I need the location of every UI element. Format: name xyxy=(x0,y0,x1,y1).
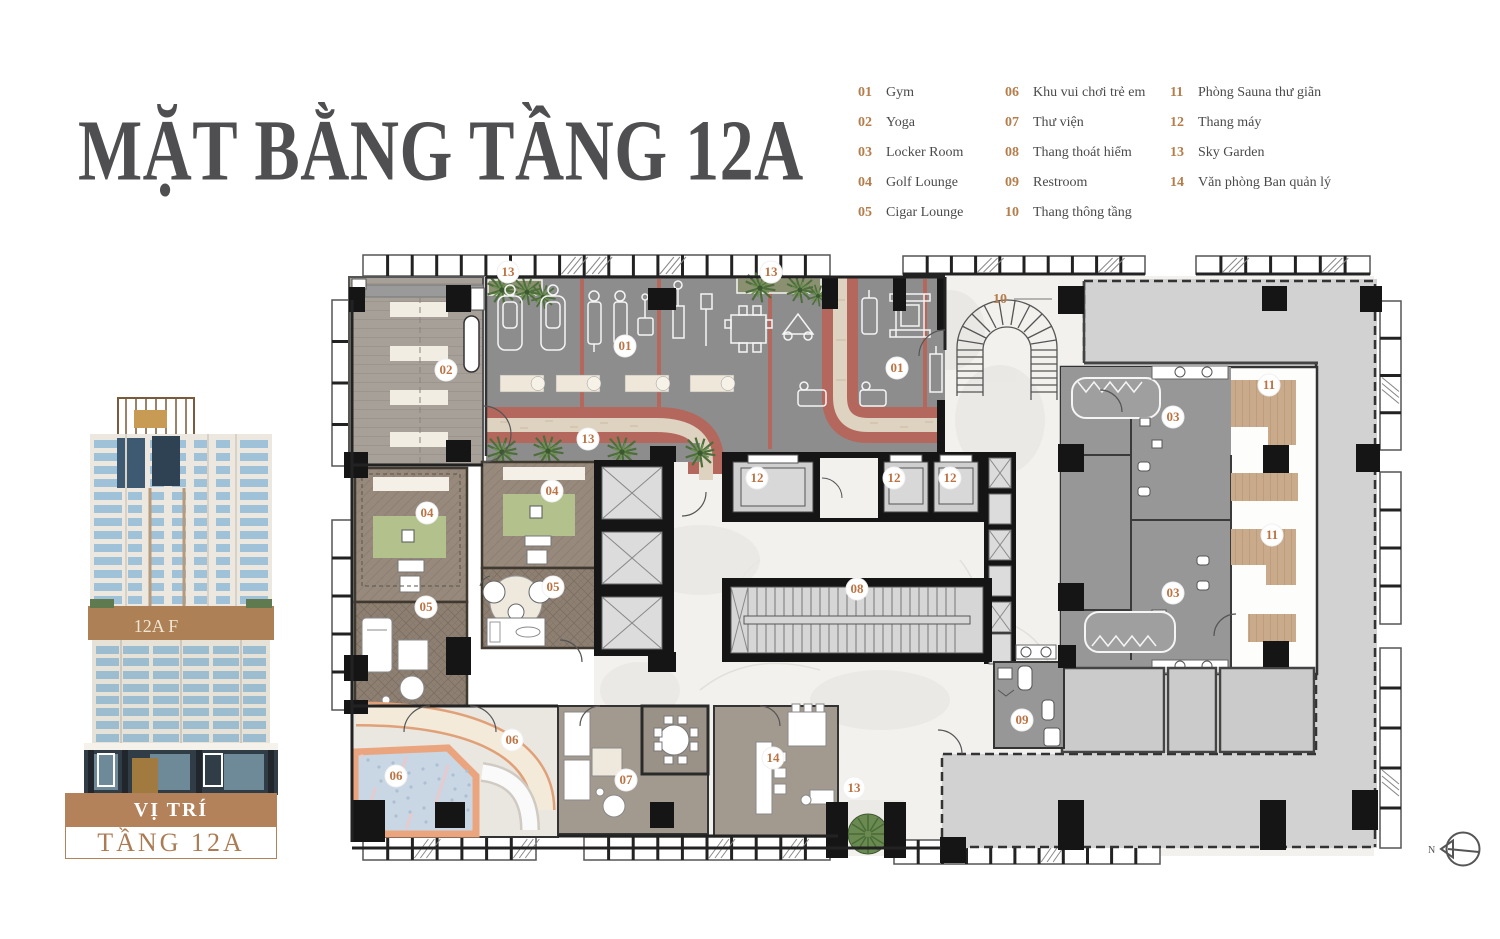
svg-text:10: 10 xyxy=(993,292,1007,307)
svg-text:04: 04 xyxy=(546,483,560,498)
svg-text:13: 13 xyxy=(502,264,516,279)
svg-text:01: 01 xyxy=(891,360,904,375)
svg-text:12: 12 xyxy=(751,470,764,485)
svg-text:06: 06 xyxy=(390,768,404,783)
svg-text:12: 12 xyxy=(944,470,957,485)
svg-text:07: 07 xyxy=(620,772,634,787)
svg-text:05: 05 xyxy=(547,579,561,594)
svg-text:13: 13 xyxy=(848,780,862,795)
svg-text:03: 03 xyxy=(1167,409,1181,424)
svg-text:03: 03 xyxy=(1167,585,1181,600)
svg-text:05: 05 xyxy=(420,599,434,614)
svg-text:14: 14 xyxy=(767,750,781,765)
svg-text:02: 02 xyxy=(440,362,453,377)
svg-text:11: 11 xyxy=(1263,377,1275,392)
svg-text:12A F: 12A F xyxy=(134,616,179,636)
svg-text:01: 01 xyxy=(619,338,632,353)
svg-text:13: 13 xyxy=(765,264,779,279)
svg-text:06: 06 xyxy=(506,732,520,747)
svg-text:N: N xyxy=(1428,845,1435,856)
svg-text:11: 11 xyxy=(1266,527,1278,542)
svg-text:04: 04 xyxy=(421,505,435,520)
svg-text:13: 13 xyxy=(582,431,596,446)
svg-text:08: 08 xyxy=(851,581,865,596)
svg-text:09: 09 xyxy=(1016,712,1030,727)
svg-text:12: 12 xyxy=(888,470,901,485)
